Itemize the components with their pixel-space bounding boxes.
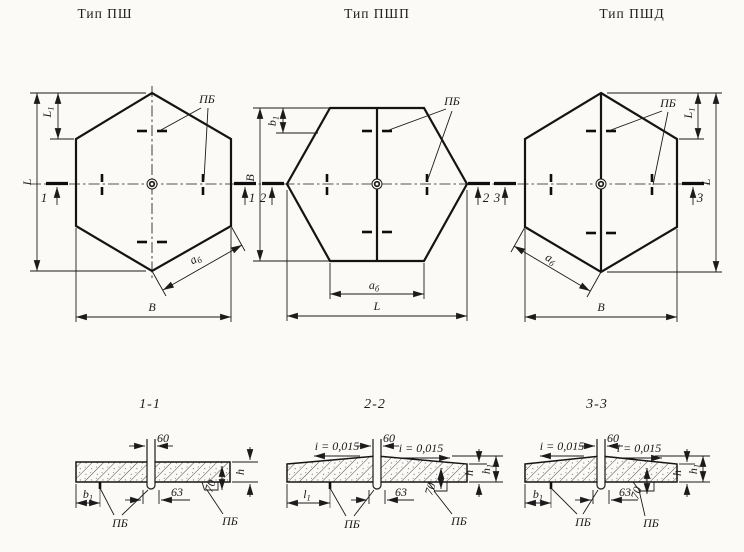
dim-label-h: h [462,470,476,476]
type-title-psh: Тип ПШ [77,6,132,21]
type-title-pshp: Тип ПШП [344,6,410,21]
cut-mark-2-left: 2 [260,184,284,206]
dim-label-L: L [20,178,34,186]
section-1-1: 1-1 60 63 h 70 b1 ПБ [76,397,258,530]
type-title-pshd: Тип ПШД [599,6,664,21]
dim-label-B: В [148,300,156,314]
pb-label: ПБ [198,92,215,106]
dim-label-h1: h1 [479,464,495,474]
dim-B: В [76,228,231,322]
dim-label-h: h [670,470,684,476]
pb-label: ПБ [450,514,467,528]
cut-mark-3-right: 3 [682,184,704,206]
cut-mark-1-left: 1 [41,184,68,206]
pb-callout: ПБ [389,94,460,179]
cut-mark-1-right: 1 [234,184,256,206]
center-hole-symbol [147,179,157,189]
slope-left: i = 0,015 [314,439,360,456]
center-hole-symbol [372,179,382,189]
pb-callout-left: ПБ [551,488,598,529]
cut-label-3: 3 [696,190,704,205]
section-title: 2-2 [364,397,386,412]
dim-label-60: 60 [383,431,395,445]
dim-L1: L1 [679,93,704,139]
dim-ab: аб [511,227,601,297]
dim-label-b1: b1 [533,487,543,503]
loop-slot [374,455,381,490]
dim-h: h [232,447,258,497]
dim-63: 63 [351,485,414,504]
dim-L: L [20,93,146,271]
pb-label: ПБ [111,516,128,530]
cut-label-1: 1 [41,190,48,205]
loop-slot [148,461,155,490]
dim-label-63: 63 [395,485,407,499]
pb-callout-right: ПБ [207,490,238,528]
dim-label-B: В [243,174,257,182]
dim-L1: L1 [40,93,74,139]
dim-label-ab: аб [187,250,204,269]
pb-label: ПБ [221,514,238,528]
section-2-2: 2-2 i = 0,015 i = 0,015 60 63 h h1 [287,397,503,531]
slope-label: i = 0,015 [315,439,359,453]
pb-label: ПБ [343,517,360,531]
dim-label-h1: h1 [686,464,702,474]
center-hole-symbol [596,179,606,189]
slope-label: i = 0,015 [399,441,443,455]
dim-label-l1: l1 [303,487,311,503]
cut-label-2: 2 [260,190,267,205]
slope-label: i = 0,015 [540,439,584,453]
dim-l1: l1 [287,484,330,508]
cut-label-2: 2 [483,190,490,205]
section-title: 3-3 [585,397,608,412]
dim-label-L1: L1 [681,108,697,120]
dim-b1: b1 [265,108,318,133]
plan-view-pshp: ПБ В b1 аб L 2 2 [243,94,490,321]
drawing-sheet: Тип ПШ Тип ПШП Тип ПШД ПБ L L1 В [0,0,744,552]
cut-label-1: 1 [249,190,256,205]
section-3-3: 3-3 i = 0,015 i = 0,015 60 63 h h1 [525,397,710,530]
dim-60: 60 [355,431,399,446]
drawing-canvas: Тип ПШ Тип ПШП Тип ПШД ПБ L L1 В [0,0,744,552]
pb-label: ПБ [574,515,591,529]
dim-b1: b1 [525,484,551,508]
dim-label-63: 63 [171,485,183,499]
pb-callout: ПБ [611,96,676,185]
dim-label-60: 60 [157,431,169,445]
dim-label-60: 60 [607,431,619,445]
dim-60: 60 [129,431,173,446]
dim-ab: аб [330,263,424,299]
dim-b1: b1 [76,484,100,508]
slope-right: i = 0,015 [394,441,450,458]
cut-mark-3-left: 3 [493,184,516,206]
dim-label-b1: b1 [83,487,93,503]
dim-label-L1: L1 [40,107,56,119]
slope-left: i = 0,015 [540,439,584,456]
dim-label-h: h [233,469,247,475]
pb-callout: ПБ [161,92,215,180]
dim-63: 63 [125,485,190,504]
dim-label-L: L [373,299,381,313]
plan-view-pshd: ПБ L1 L В аб 3 3 [493,93,722,322]
dim-label-ab: аб [542,250,559,269]
pb-label: ПБ [443,94,460,108]
pb-label: ПБ [642,516,659,530]
pb-callout-right: ПБ [434,491,467,528]
pb-callout-left: ПБ [100,488,148,530]
slope-right: i = 0,015 [617,441,662,458]
loop-slot [598,455,605,490]
plan-view-psh: ПБ L L1 В аб 1 1 [20,86,256,322]
cut-label-3: 3 [493,190,501,205]
cut-mark-2-right: 2 [468,184,490,206]
dim-L: L [607,93,722,272]
pb-callout-left: ПБ [330,488,374,531]
slope-label: i = 0,015 [617,441,661,455]
dim-label-B: В [597,300,605,314]
pb-label: ПБ [659,96,676,110]
dim-label-ab: аб [369,278,380,294]
dim-label-b1: b1 [265,116,281,126]
section-title: 1-1 [139,397,161,412]
dim-60: 60 [579,431,623,446]
